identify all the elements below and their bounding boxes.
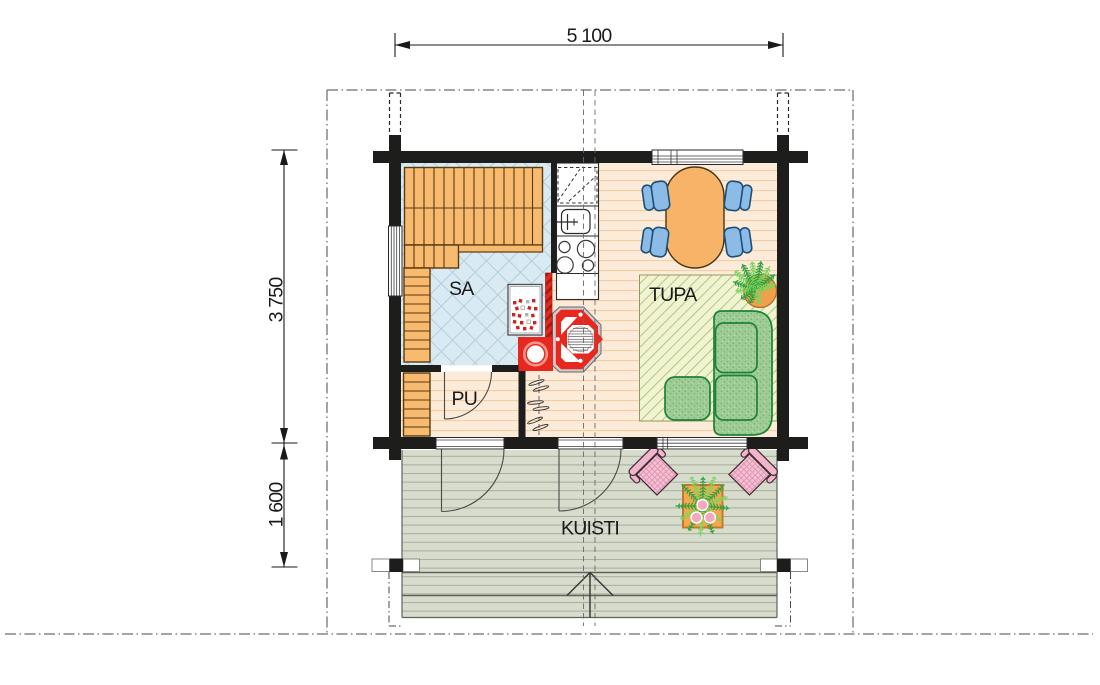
svg-text:1 600: 1 600 [266,482,288,528]
svg-text:SA: SA [449,278,474,300]
svg-text:3 750: 3 750 [266,277,288,323]
svg-text:5 100: 5 100 [567,25,613,47]
svg-text:TUPA: TUPA [649,284,697,306]
svg-text:PU: PU [452,388,478,410]
svg-text:KUISTI: KUISTI [561,518,619,540]
